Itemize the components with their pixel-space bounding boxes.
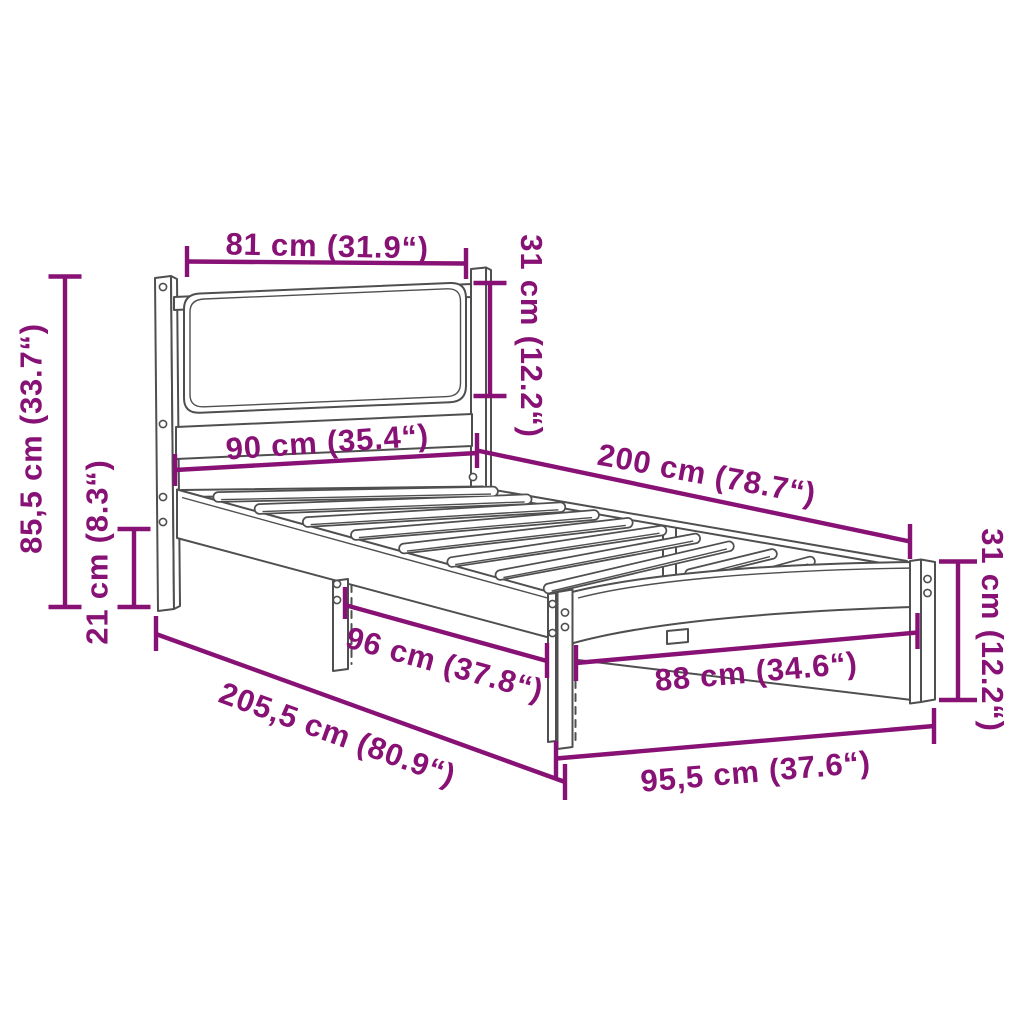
svg-text:31 cm (12.2“): 31 cm (12.2“)	[975, 528, 1010, 731]
svg-text:31 cm (12.2“): 31 cm (12.2“)	[514, 234, 549, 437]
svg-text:81 cm (31.9“): 81 cm (31.9“)	[225, 226, 429, 265]
svg-text:85,5 cm (33.7“): 85,5 cm (33.7“)	[14, 323, 49, 554]
svg-text:21 cm (8.3“): 21 cm (8.3“)	[80, 459, 115, 644]
